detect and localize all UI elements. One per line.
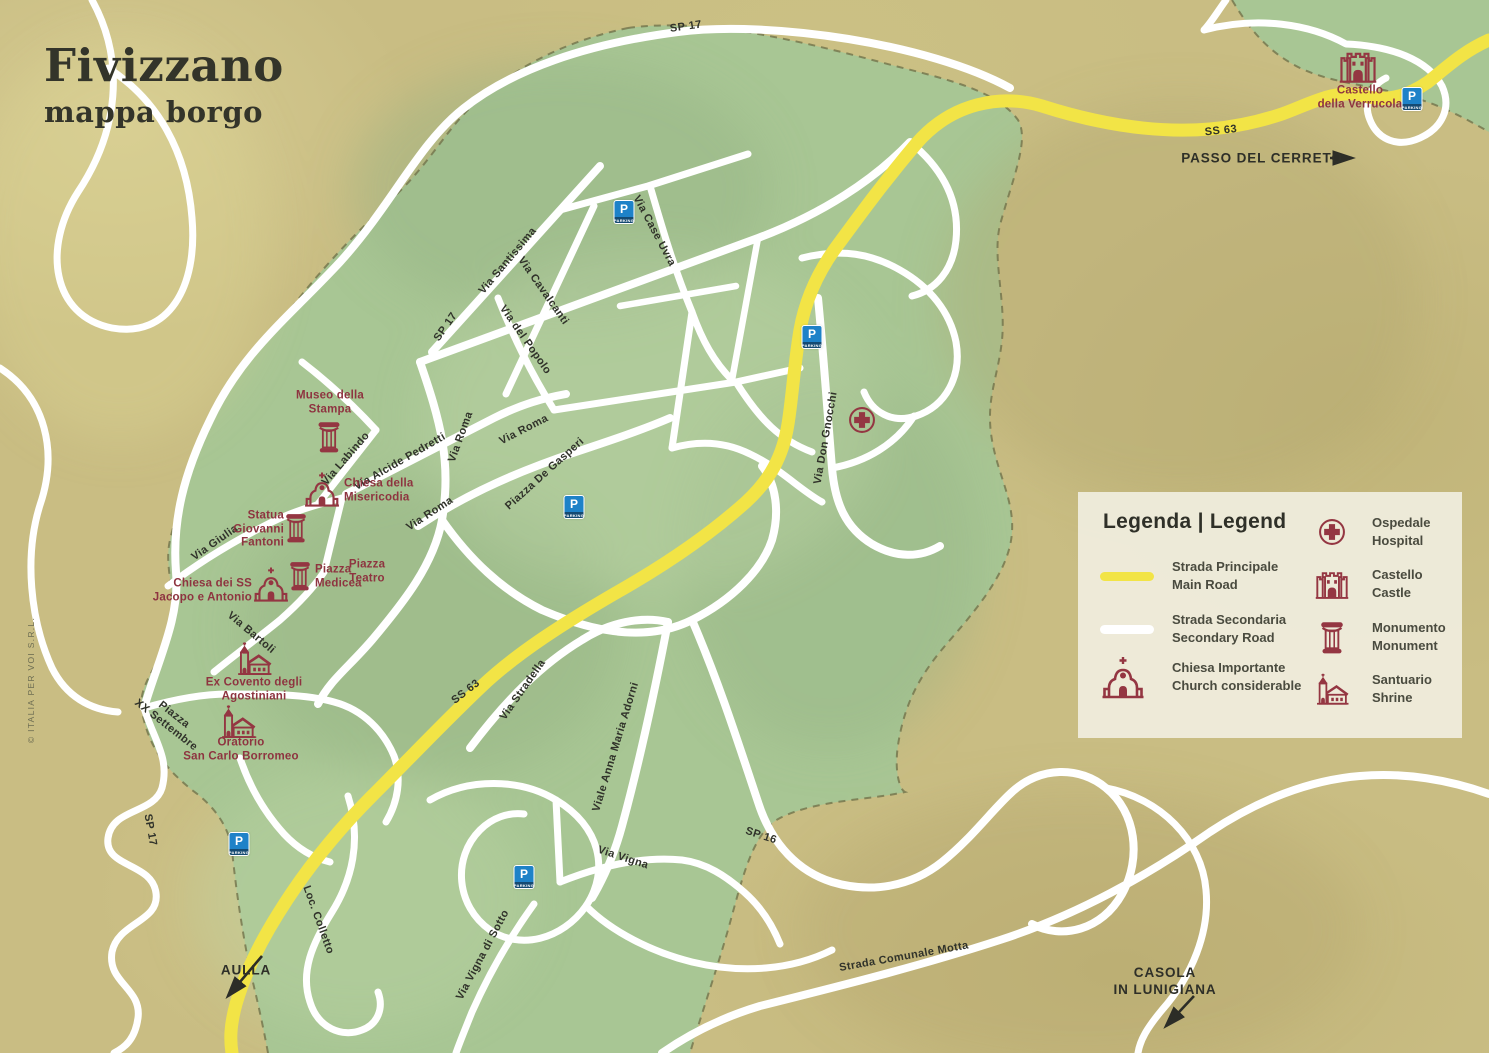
legend-label: Shrine <box>1372 689 1432 707</box>
legend-label: Monument <box>1372 637 1446 655</box>
direction-label: AULLA <box>221 963 271 980</box>
legend-item-castle: Castello Castle <box>1314 566 1423 602</box>
church-icon <box>252 565 290 603</box>
legend-label: Secondary Road <box>1172 629 1286 647</box>
map-canvas: SP 17SS 63Via Case UvraVia SantissimaVia… <box>0 0 1489 1053</box>
legend-label: Santuario <box>1372 671 1432 689</box>
parking-letter: P <box>802 325 823 342</box>
parking-letter: P <box>514 865 535 882</box>
map-title: Fivizzano <box>44 42 284 89</box>
copyright-text: © ITALIA PER VOI S.R.L. <box>26 617 36 743</box>
street-label: Via Cavalcanti <box>515 255 571 328</box>
legend-label: Castle <box>1372 584 1423 602</box>
shrine-icon <box>219 703 257 741</box>
road-number-label: SP 16 <box>744 825 779 847</box>
legend-label: Chiesa Importante <box>1172 659 1301 677</box>
legend-panel: Legenda | Legend Strada Principale Main … <box>1078 492 1462 738</box>
direction-label: PASSO DEL CERRETO <box>1181 151 1343 168</box>
legend-label: Main Road <box>1172 576 1278 594</box>
poi-label: Chiesa della Misericodia <box>344 477 414 504</box>
main-road-swatch <box>1100 572 1154 581</box>
parking-caption: PARKING <box>802 342 823 349</box>
map-subtitle: mappa borgo <box>44 95 284 129</box>
parking-icon: PPARKING <box>564 495 585 519</box>
road-number-label: SP 17 <box>432 310 461 344</box>
legend-label: Strada Secondaria <box>1172 611 1286 629</box>
hospital-icon <box>1314 517 1350 547</box>
legend-item-main-road: Strada Principale Main Road <box>1100 558 1278 594</box>
shrine-icon <box>1314 673 1350 706</box>
monument-icon <box>1314 621 1350 654</box>
parking-caption: PARKING <box>1402 104 1423 111</box>
legend-item-shrine: Santuario Shrine <box>1314 671 1432 707</box>
road-number-label: SS 63 <box>449 677 482 707</box>
street-label: Via Vigna di Sotto <box>454 908 512 1003</box>
castle-icon <box>1314 567 1350 601</box>
street-label: Viale Anna Maria Adorni <box>590 681 641 814</box>
secondary-road-swatch <box>1100 625 1154 634</box>
parking-icon: PPARKING <box>514 865 535 889</box>
legend-label: Strada Principale <box>1172 558 1278 576</box>
legend-label: Monumento <box>1372 619 1446 637</box>
legend-item-monument: Monumento Monument <box>1314 619 1446 655</box>
castle-icon <box>1338 46 1378 86</box>
parking-icon: PPARKING <box>802 325 823 349</box>
church-icon <box>303 470 341 508</box>
hospital-icon <box>847 405 877 435</box>
monument-icon <box>313 421 345 453</box>
legend-item-secondary-road: Strada Secondaria Secondary Road <box>1100 611 1286 647</box>
parking-icon: PPARKING <box>229 832 250 856</box>
road-number-label: SP 17 <box>141 813 159 847</box>
parking-caption: PARKING <box>514 882 535 889</box>
parking-caption: PARKING <box>229 849 250 856</box>
road-number-label: SP 17 <box>669 18 703 35</box>
parking-letter: P <box>229 832 250 849</box>
street-label: Via Roma <box>497 412 550 447</box>
poi-label: Piazza Teatro <box>349 558 385 585</box>
legend-label: Church considerable <box>1172 677 1301 695</box>
legend-label: Castello <box>1372 566 1423 584</box>
street-label: Strada Comunale Motta <box>838 939 969 974</box>
parking-icon: PPARKING <box>614 200 635 224</box>
monument-icon <box>281 513 311 543</box>
parking-letter: P <box>614 200 635 217</box>
parking-caption: PARKING <box>614 217 635 224</box>
street-label: Via Stradella <box>497 657 548 722</box>
legend-item-hospital: Ospedale Hospital <box>1314 514 1431 550</box>
poi-label: Museo della Stampa <box>296 389 364 416</box>
road-number-label: SS 63 <box>1204 123 1238 139</box>
legend-item-church: Chiesa Importante Church considerable <box>1092 654 1301 700</box>
street-label: Via Don Gnocchi <box>812 391 841 486</box>
street-label: Via Vigna <box>596 844 650 872</box>
poi-label: Statua Giovanni Fantoni <box>233 510 284 551</box>
poi-label: Castello della Verrucola <box>1318 84 1403 111</box>
direction-label: CASOLA IN LUNIGIANA <box>1113 965 1216 999</box>
parking-icon: PPARKING <box>1402 87 1423 111</box>
street-label: Via Case Uvra <box>630 193 678 268</box>
legend-label: Ospedale <box>1372 514 1431 532</box>
street-label: Via del Popolo <box>497 303 554 377</box>
shrine-icon <box>235 640 273 678</box>
legend-label: Hospital <box>1372 532 1431 550</box>
street-label: Loc. Colletto <box>300 884 336 956</box>
parking-caption: PARKING <box>564 512 585 519</box>
poi-label: Chiesa dei SS Jacopo e Antonio <box>153 577 252 604</box>
map-title-block: Fivizzano mappa borgo <box>44 42 284 129</box>
legend-title: Legenda | Legend <box>1103 510 1286 534</box>
church-icon <box>1092 654 1154 700</box>
parking-letter: P <box>564 495 585 512</box>
parking-letter: P <box>1402 87 1423 104</box>
street-label: Via Roma <box>446 410 476 464</box>
poi-label: Ex Covento degli Agostiniani <box>206 676 303 703</box>
